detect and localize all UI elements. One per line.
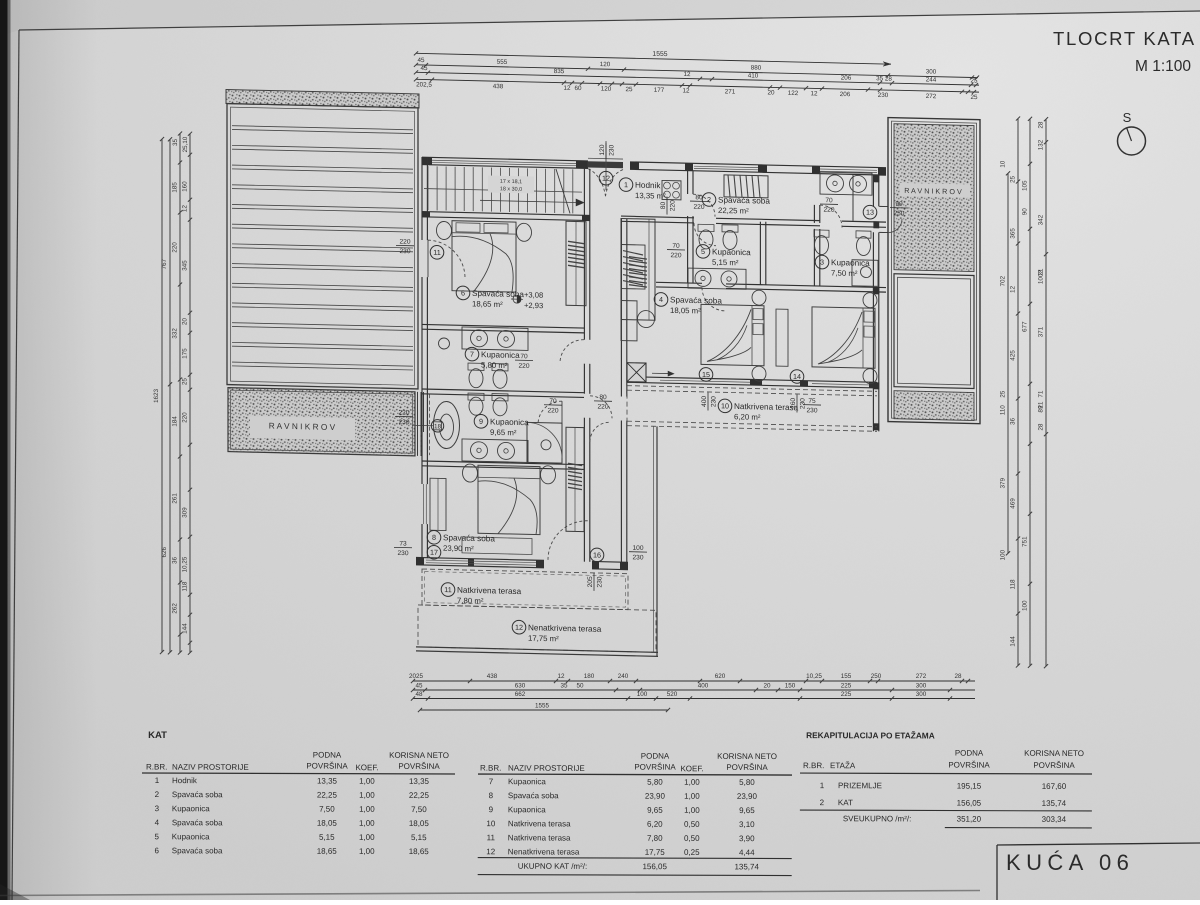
svg-text:14: 14	[793, 372, 801, 381]
svg-text:0,50: 0,50	[684, 834, 700, 843]
svg-text:+2,93: +2,93	[524, 301, 543, 310]
svg-text:Hodnik: Hodnik	[172, 776, 198, 785]
svg-text:Spavaća soba: Spavaća soba	[670, 295, 722, 305]
svg-text:7: 7	[489, 777, 494, 786]
svg-text:PODNA: PODNA	[955, 749, 984, 758]
svg-text:Kupaonica: Kupaonica	[712, 247, 751, 257]
svg-text:225: 225	[841, 691, 852, 698]
svg-text:105: 105	[1022, 180, 1029, 191]
svg-text:132: 132	[1038, 139, 1045, 150]
svg-text:Spavaća soba: Spavaća soba	[443, 533, 495, 543]
svg-text:677: 677	[1022, 321, 1029, 332]
svg-text:272: 272	[926, 93, 937, 100]
svg-text:751: 751	[1022, 536, 1029, 547]
svg-text:7,80 m²: 7,80 m²	[457, 596, 484, 606]
svg-text:45: 45	[417, 57, 425, 64]
svg-text:220: 220	[597, 403, 608, 410]
svg-text:KORISNA NETO: KORISNA NETO	[717, 752, 777, 761]
svg-text:POVRŠINA: POVRŠINA	[726, 763, 768, 772]
svg-text:Spavaća soba: Spavaća soba	[172, 790, 223, 799]
svg-text:18,05: 18,05	[317, 819, 338, 828]
svg-text:18: 18	[434, 423, 442, 430]
svg-text:1: 1	[155, 776, 160, 785]
svg-text:1,00: 1,00	[359, 833, 375, 842]
svg-text:7,50 m²: 7,50 m²	[831, 268, 858, 278]
svg-text:7: 7	[470, 350, 474, 359]
svg-text:410: 410	[748, 72, 759, 79]
svg-text:70: 70	[825, 197, 833, 204]
svg-text:10: 10	[721, 401, 729, 410]
svg-text:Kupaonica: Kupaonica	[172, 804, 210, 813]
svg-text:TLOCRT KATA: TLOCRT KATA	[1053, 28, 1196, 49]
svg-text:9: 9	[479, 417, 483, 426]
svg-text:Hodnik: Hodnik	[635, 181, 661, 191]
svg-text:R A V N I K R O V: R A V N I K R O V	[269, 421, 336, 433]
svg-text:195,15: 195,15	[957, 782, 982, 791]
svg-text:160: 160	[182, 181, 189, 192]
svg-text:1,00: 1,00	[359, 847, 375, 856]
svg-text:5,80 m²: 5,80 m²	[481, 361, 508, 371]
svg-text:100: 100	[632, 545, 643, 552]
svg-text:17,75: 17,75	[645, 848, 666, 857]
svg-text:KAT: KAT	[838, 798, 853, 807]
svg-text:+3,08: +3,08	[524, 290, 543, 299]
svg-text:10,25: 10,25	[182, 556, 189, 572]
svg-text:1: 1	[624, 180, 628, 189]
svg-text:160: 160	[790, 398, 797, 409]
svg-text:332: 332	[172, 328, 179, 339]
svg-text:UKUPNO KAT /m²/:: UKUPNO KAT /m²/:	[518, 862, 588, 871]
svg-text:13: 13	[866, 208, 874, 217]
svg-text:18,65: 18,65	[317, 847, 338, 856]
svg-text:2: 2	[707, 195, 711, 204]
svg-text:345: 345	[182, 260, 189, 271]
svg-text:25: 25	[1010, 175, 1017, 183]
svg-text:KOEF.: KOEF.	[680, 764, 703, 773]
svg-text:45: 45	[415, 683, 423, 690]
svg-text:220: 220	[518, 363, 529, 370]
svg-text:300: 300	[916, 691, 927, 698]
svg-text:1,00: 1,00	[684, 778, 700, 787]
svg-text:230: 230	[399, 248, 410, 255]
svg-text:110: 110	[1000, 405, 1007, 416]
svg-text:POVRŠINA: POVRŠINA	[948, 761, 990, 770]
svg-text:425: 425	[1010, 350, 1017, 361]
svg-text:10: 10	[486, 819, 495, 828]
svg-text:1,00: 1,00	[359, 791, 375, 800]
svg-text:100: 100	[1022, 600, 1029, 611]
svg-text:12: 12	[682, 87, 690, 94]
svg-text:230: 230	[800, 398, 807, 409]
svg-text:18,65 m²: 18,65 m²	[472, 299, 503, 309]
svg-text:144: 144	[182, 623, 189, 634]
svg-text:17,75 m²: 17,75 m²	[528, 634, 559, 644]
svg-text:230: 230	[632, 554, 643, 561]
svg-text:6,20: 6,20	[647, 820, 663, 829]
svg-text:36: 36	[1010, 417, 1017, 425]
svg-text:90: 90	[895, 201, 903, 208]
svg-text:71: 71	[1038, 390, 1045, 398]
svg-text:20: 20	[763, 683, 771, 690]
svg-text:Kupaonica: Kupaonica	[508, 777, 546, 786]
svg-text:28: 28	[1038, 121, 1045, 129]
svg-text:303,34: 303,34	[1042, 815, 1067, 824]
svg-text:1,00: 1,00	[684, 806, 700, 815]
svg-text:89: 89	[1038, 405, 1045, 413]
svg-text:28: 28	[1038, 423, 1045, 431]
svg-text:12: 12	[182, 205, 189, 213]
svg-text:5,80: 5,80	[739, 778, 755, 787]
svg-text:230: 230	[711, 396, 718, 407]
svg-text:POVRŠINA: POVRŠINA	[634, 763, 676, 772]
svg-text:520: 520	[667, 691, 678, 698]
svg-text:Natkrivena terasa: Natkrivena terasa	[508, 819, 571, 828]
svg-text:70: 70	[520, 353, 528, 360]
svg-text:R.BR.: R.BR.	[803, 761, 824, 770]
svg-text:7,50: 7,50	[319, 805, 335, 814]
svg-text:12: 12	[683, 71, 691, 78]
svg-text:11: 11	[487, 833, 496, 842]
svg-text:371: 371	[1038, 326, 1045, 337]
svg-text:220: 220	[823, 207, 834, 214]
svg-text:271: 271	[725, 88, 736, 95]
svg-text:5: 5	[701, 247, 705, 256]
svg-text:206: 206	[841, 74, 852, 81]
svg-text:835: 835	[554, 68, 565, 75]
svg-text:230: 230	[609, 144, 616, 155]
svg-text:2025: 2025	[409, 673, 424, 680]
svg-text:3: 3	[820, 258, 824, 267]
svg-text:35: 35	[172, 138, 179, 146]
svg-text:PODNA: PODNA	[641, 752, 670, 761]
svg-text:Kupaonica: Kupaonica	[481, 350, 520, 360]
svg-text:120: 120	[600, 61, 611, 68]
svg-text:NAZIV PROSTORIJE: NAZIV PROSTORIJE	[172, 763, 249, 772]
svg-text:184: 184	[172, 416, 179, 427]
svg-text:20: 20	[182, 318, 189, 326]
svg-text:150: 150	[785, 683, 796, 690]
svg-text:175: 175	[182, 348, 189, 359]
svg-text:22,25: 22,25	[317, 791, 338, 800]
svg-text:48: 48	[415, 691, 423, 698]
svg-text:Kupaonica: Kupaonica	[172, 832, 210, 841]
svg-text:250: 250	[871, 673, 882, 680]
svg-text:13,35 m²: 13,35 m²	[635, 191, 666, 201]
svg-text:4: 4	[659, 295, 663, 304]
svg-text:662: 662	[515, 691, 526, 698]
svg-text:70: 70	[672, 243, 680, 250]
svg-text:1555: 1555	[535, 703, 550, 710]
svg-text:16: 16	[593, 550, 601, 559]
svg-text:3,10: 3,10	[739, 820, 755, 829]
svg-text:ETAŽA: ETAŽA	[830, 761, 856, 770]
svg-text:880: 880	[751, 64, 762, 71]
svg-text:206: 206	[840, 91, 851, 98]
svg-text:Spavaća soba: Spavaća soba	[172, 846, 223, 855]
svg-text:23,90 m²: 23,90 m²	[443, 544, 474, 554]
svg-text:POVRŠINA: POVRŠINA	[1033, 761, 1075, 770]
svg-text:Kupaonica: Kupaonica	[508, 805, 546, 814]
svg-text:20: 20	[767, 89, 775, 96]
svg-text:Spavaća soba: Spavaća soba	[718, 196, 770, 206]
svg-text:351,20: 351,20	[957, 815, 982, 824]
svg-text:35 28: 35 28	[876, 75, 892, 82]
svg-text:25: 25	[970, 77, 978, 84]
svg-text:555: 555	[497, 59, 508, 66]
svg-text:22,25: 22,25	[409, 791, 430, 800]
svg-text:135,74: 135,74	[1042, 799, 1067, 808]
svg-text:12: 12	[810, 90, 818, 97]
svg-text:9: 9	[489, 805, 494, 814]
svg-text:22,25 m²: 22,25 m²	[718, 206, 749, 216]
svg-text:8: 8	[489, 791, 494, 800]
svg-text:80: 80	[599, 394, 607, 401]
svg-text:Kupaonica: Kupaonica	[490, 417, 529, 427]
svg-text:5,15: 5,15	[411, 833, 427, 842]
svg-text:SVEUKUPNO /m²/:: SVEUKUPNO /m²/:	[843, 814, 911, 823]
svg-text:60: 60	[574, 85, 582, 92]
svg-text:167,60: 167,60	[1042, 782, 1067, 791]
svg-text:Spavaća soba: Spavaća soba	[172, 818, 223, 827]
svg-text:M 1:100: M 1:100	[1135, 58, 1191, 75]
svg-text:12: 12	[515, 623, 523, 632]
svg-text:6: 6	[461, 288, 465, 297]
svg-text:220: 220	[399, 238, 410, 245]
svg-text:6,20 m²: 6,20 m²	[734, 412, 761, 422]
svg-text:702: 702	[1000, 275, 1007, 286]
svg-text:KAT: KAT	[148, 730, 167, 741]
svg-text:25: 25	[1000, 390, 1007, 398]
svg-text:1623: 1623	[153, 388, 160, 403]
svg-text:KORISNA NETO: KORISNA NETO	[389, 751, 449, 760]
svg-text:230: 230	[397, 550, 408, 557]
svg-text:12: 12	[486, 847, 495, 856]
svg-text:Kupaonica: Kupaonica	[831, 258, 870, 268]
svg-text:630: 630	[515, 683, 526, 690]
svg-text:Natkrivena terasa: Natkrivena terasa	[734, 402, 799, 412]
svg-text:120: 120	[599, 144, 606, 155]
svg-text:230: 230	[597, 576, 604, 587]
svg-text:73: 73	[399, 540, 407, 547]
svg-text:12: 12	[602, 174, 610, 183]
svg-text:1,00: 1,00	[359, 819, 375, 828]
svg-text:309: 309	[182, 507, 189, 518]
svg-text:POVRŠINA: POVRŠINA	[306, 762, 348, 771]
svg-text:620: 620	[715, 673, 726, 680]
svg-text:11: 11	[444, 585, 451, 594]
svg-text:155: 155	[841, 673, 852, 680]
svg-text:Spavaća soba: Spavaća soba	[508, 791, 559, 800]
svg-text:25: 25	[182, 378, 189, 386]
svg-text:13,35: 13,35	[409, 777, 430, 786]
svg-text:5,15: 5,15	[319, 833, 335, 842]
svg-text:261: 261	[172, 493, 179, 504]
svg-text:1: 1	[820, 781, 825, 790]
svg-text:244: 244	[926, 76, 937, 83]
svg-text:Natkrivena terasa: Natkrivena terasa	[457, 586, 522, 596]
svg-text:379: 379	[1000, 477, 1007, 488]
svg-text:PRIZEMLJE: PRIZEMLJE	[838, 781, 882, 790]
svg-text:262: 262	[172, 603, 179, 614]
svg-text:17 x 18,1: 17 x 18,1	[500, 179, 522, 186]
svg-text:28: 28	[954, 673, 962, 680]
svg-text:Nenatkrivena terasa: Nenatkrivena terasa	[528, 623, 602, 634]
svg-text:205: 205	[587, 576, 594, 587]
svg-text:36: 36	[172, 556, 179, 564]
svg-text:KOEF.: KOEF.	[355, 763, 378, 772]
svg-text:R A V N I K R O V: R A V N I K R O V	[904, 186, 962, 196]
svg-text:3,90: 3,90	[739, 834, 755, 843]
svg-text:11: 11	[433, 248, 440, 257]
svg-text:25: 25	[625, 86, 633, 93]
svg-text:230: 230	[398, 419, 409, 426]
svg-text:R.BR.: R.BR.	[480, 764, 501, 773]
svg-text:177: 177	[654, 87, 665, 94]
svg-text:50: 50	[576, 683, 584, 690]
svg-text:75: 75	[808, 398, 816, 405]
svg-text:45: 45	[420, 65, 428, 72]
svg-text:KORISNA NETO: KORISNA NETO	[1024, 749, 1084, 758]
svg-text:135,74: 135,74	[734, 862, 759, 871]
svg-text:12: 12	[563, 85, 571, 92]
svg-text:4,44: 4,44	[739, 848, 755, 857]
svg-text:2: 2	[820, 798, 825, 807]
svg-text:626: 626	[161, 546, 168, 557]
svg-text:4: 4	[155, 818, 160, 827]
svg-text:185: 185	[172, 182, 179, 193]
svg-text:70: 70	[549, 398, 557, 405]
svg-text:9,65: 9,65	[647, 806, 663, 815]
svg-text:240: 240	[618, 673, 629, 680]
svg-text:3: 3	[155, 804, 160, 813]
svg-text:25: 25	[970, 94, 978, 101]
svg-text:6: 6	[155, 846, 160, 855]
svg-text:100: 100	[1000, 549, 1007, 560]
svg-text:18,05: 18,05	[409, 819, 430, 828]
svg-text:118: 118	[182, 581, 189, 592]
svg-text:1002: 1002	[1038, 269, 1045, 284]
svg-text:342: 342	[1038, 214, 1045, 225]
svg-text:300: 300	[916, 683, 927, 690]
svg-text:220: 220	[670, 200, 677, 211]
svg-text:1555: 1555	[652, 51, 667, 58]
svg-text:5,80: 5,80	[647, 778, 663, 787]
svg-text:7,80: 7,80	[647, 834, 663, 843]
svg-text:180: 180	[584, 673, 595, 680]
svg-text:1,00: 1,00	[684, 792, 700, 801]
svg-text:2: 2	[155, 790, 160, 799]
svg-text:10: 10	[1000, 160, 1007, 168]
svg-text:R.BR.: R.BR.	[146, 763, 167, 772]
svg-text:220: 220	[172, 242, 179, 253]
svg-text:250: 250	[893, 210, 904, 217]
svg-text:Nenatkrivena terasa: Nenatkrivena terasa	[508, 847, 580, 856]
svg-text:230: 230	[806, 407, 817, 414]
svg-text:5: 5	[155, 832, 160, 841]
svg-text:1,00: 1,00	[359, 805, 375, 814]
svg-text:S: S	[1123, 110, 1132, 125]
svg-text:156,05: 156,05	[642, 862, 667, 871]
svg-text:220: 220	[398, 409, 409, 416]
svg-text:225: 225	[841, 683, 852, 690]
svg-text:18 x 30,0: 18 x 30,0	[500, 186, 522, 193]
svg-text:23,90: 23,90	[645, 792, 666, 801]
svg-text:10,25: 10,25	[806, 673, 822, 680]
svg-text:230: 230	[878, 92, 889, 99]
svg-text:NAZIV PROSTORIJE: NAZIV PROSTORIJE	[508, 764, 585, 773]
svg-text:12: 12	[557, 673, 565, 680]
svg-text:1,00: 1,00	[359, 777, 375, 786]
svg-text:18,65: 18,65	[409, 847, 430, 856]
svg-text:400: 400	[701, 396, 708, 407]
svg-text:144: 144	[1010, 636, 1017, 647]
svg-text:220: 220	[182, 412, 189, 423]
svg-text:KUĆA 06: KUĆA 06	[1006, 850, 1134, 875]
svg-text:0,50: 0,50	[684, 820, 700, 829]
svg-text:120: 120	[601, 86, 612, 93]
svg-text:100: 100	[637, 691, 648, 698]
svg-text:7,50: 7,50	[411, 805, 427, 814]
svg-text:202,5: 202,5	[416, 81, 432, 88]
svg-text:438: 438	[487, 673, 498, 680]
svg-text:Natkrivena terasa: Natkrivena terasa	[508, 833, 571, 842]
svg-text:118: 118	[1010, 579, 1017, 590]
svg-text:15: 15	[702, 370, 710, 379]
svg-text:17: 17	[430, 548, 438, 557]
svg-text:767: 767	[161, 258, 168, 269]
svg-text:469: 469	[1010, 498, 1017, 509]
svg-text:25,10: 25,10	[182, 136, 189, 152]
svg-text:438: 438	[493, 83, 504, 90]
svg-text:9,65 m²: 9,65 m²	[490, 428, 517, 438]
svg-text:13,35: 13,35	[317, 777, 338, 786]
svg-text:300: 300	[926, 68, 937, 75]
svg-text:80: 80	[695, 194, 703, 201]
svg-text:8: 8	[432, 533, 436, 542]
svg-text:9,65: 9,65	[739, 806, 755, 815]
svg-text:12: 12	[1010, 285, 1017, 293]
svg-text:156,05: 156,05	[957, 799, 982, 808]
svg-text:220: 220	[547, 407, 558, 414]
svg-text:80: 80	[660, 201, 667, 209]
svg-text:0,25: 0,25	[684, 848, 700, 857]
svg-text:220: 220	[670, 252, 681, 259]
svg-text:122: 122	[788, 90, 799, 97]
svg-text:Spavaća soba: Spavaća soba	[472, 289, 524, 299]
svg-text:35: 35	[560, 683, 568, 690]
svg-text:PODNA: PODNA	[313, 751, 342, 760]
svg-text:272: 272	[916, 673, 927, 680]
svg-text:REKAPITULACIJA PO ETAŽAMA: REKAPITULACIJA PO ETAŽAMA	[806, 729, 935, 740]
svg-text:POVRŠINA: POVRŠINA	[398, 762, 440, 771]
svg-text:23,90: 23,90	[737, 792, 758, 801]
svg-text:220: 220	[693, 204, 704, 211]
svg-text:5,15 m²: 5,15 m²	[712, 258, 739, 268]
svg-text:90: 90	[1022, 208, 1029, 216]
svg-text:365: 365	[1010, 228, 1017, 239]
svg-text:18,05 m²: 18,05 m²	[670, 306, 701, 316]
svg-text:400: 400	[698, 683, 709, 690]
